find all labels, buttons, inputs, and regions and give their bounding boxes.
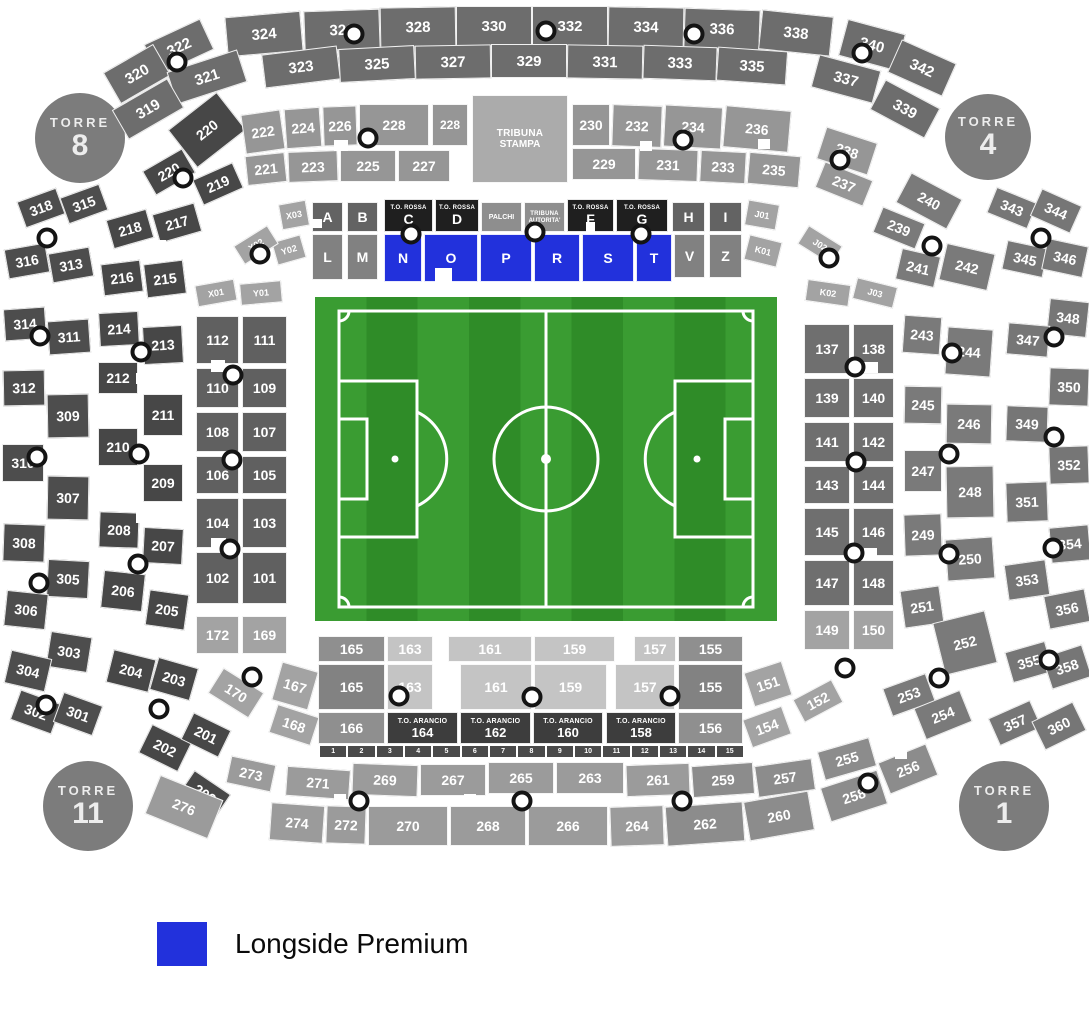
section-334[interactable]: 334 (608, 6, 685, 47)
row-strip-number: 15 (717, 746, 743, 757)
section-150[interactable]: 150 (853, 610, 894, 650)
gate-marker-icon (858, 773, 879, 794)
section-302[interactable]: 302 (10, 689, 62, 734)
gate-marker-icon (358, 128, 379, 149)
section-j01[interactable]: J01 (744, 199, 780, 230)
section-307[interactable]: 307 (47, 476, 90, 521)
section-165[interactable]: 165 (318, 636, 385, 662)
gate-marker-icon (929, 668, 950, 689)
stadium-seat-map: 123456789101112131415 Longside Premium 3… (0, 0, 1089, 1032)
section-155[interactable]: 155 (678, 636, 743, 662)
gate-marker-icon (36, 695, 57, 716)
section-139[interactable]: 139 (804, 378, 850, 418)
section-260[interactable]: 260 (743, 791, 815, 842)
section-167[interactable]: 167 (271, 662, 319, 711)
gate-marker-icon (27, 447, 48, 468)
gate-marker-icon (349, 791, 370, 812)
section-236[interactable]: 236 (722, 105, 791, 153)
section-270[interactable]: 270 (368, 806, 448, 846)
vomitory-notch (940, 289, 952, 299)
section-351[interactable]: 351 (1005, 481, 1048, 522)
section-149[interactable]: 149 (804, 610, 850, 650)
section-151[interactable]: 151 (743, 661, 792, 708)
gate-marker-icon (672, 791, 693, 812)
section-147[interactable]: 147 (804, 560, 850, 606)
row-strip-number: 6 (462, 746, 488, 757)
section-137[interactable]: 137 (804, 324, 850, 374)
gate-marker-icon (149, 699, 170, 720)
section-232[interactable]: 232 (611, 104, 662, 148)
section-308[interactable]: 308 (2, 523, 45, 562)
section-268[interactable]: 268 (450, 806, 526, 846)
row-strip-number: 14 (688, 746, 714, 757)
row-strip-number: 10 (575, 746, 601, 757)
vomitory-notch (758, 139, 770, 149)
section-214[interactable]: 214 (98, 311, 140, 347)
gate-marker-icon (1031, 228, 1052, 249)
section-172[interactable]: 172 (196, 616, 239, 654)
section-318[interactable]: 318 (16, 188, 65, 229)
section-162[interactable]: T.O. ARANCIO162 (460, 712, 531, 744)
section-102[interactable]: 102 (196, 552, 239, 604)
section-111[interactable]: 111 (242, 316, 287, 364)
section-252[interactable]: 252 (932, 610, 997, 675)
section-222[interactable]: 222 (240, 109, 285, 154)
gate-marker-icon (845, 357, 866, 378)
section-303[interactable]: 303 (45, 631, 92, 673)
row-strip-number: 11 (603, 746, 629, 757)
gate-marker-icon (389, 686, 410, 707)
gate-marker-icon (220, 539, 241, 560)
section-205[interactable]: 205 (145, 589, 190, 630)
section-264[interactable]: 264 (609, 805, 664, 847)
section-248[interactable]: 248 (946, 466, 995, 519)
section-353[interactable]: 353 (1004, 559, 1051, 600)
section-231[interactable]: 231 (637, 148, 698, 182)
section-163[interactable]: 163 (387, 636, 433, 662)
section-148[interactable]: 148 (853, 560, 894, 606)
section-203[interactable]: 203 (149, 657, 199, 701)
section-p[interactable]: P (480, 234, 532, 282)
section-157[interactable]: 157 (634, 636, 676, 662)
section-207[interactable]: 207 (142, 527, 184, 565)
section-274[interactable]: 274 (269, 802, 326, 844)
row-strip-number: 3 (377, 746, 403, 757)
section-112[interactable]: 112 (196, 316, 239, 364)
row-strip-number: 4 (405, 746, 431, 757)
section-103[interactable]: 103 (242, 498, 287, 548)
gate-marker-icon (250, 244, 271, 265)
gate-marker-icon (835, 658, 856, 679)
section-155[interactable]: 155 (678, 664, 743, 710)
section-329[interactable]: 329 (491, 44, 567, 78)
gate-marker-icon (939, 444, 960, 465)
section-243[interactable]: 243 (902, 315, 943, 356)
gate-marker-icon (128, 554, 149, 575)
section-stampa[interactable]: TRIBUNASTAMPA (472, 95, 568, 183)
section-212[interactable]: 212 (98, 362, 138, 394)
section-273[interactable]: 273 (226, 756, 277, 793)
section-166[interactable]: 166 (318, 712, 385, 744)
section-206[interactable]: 206 (100, 570, 146, 612)
section-349[interactable]: 349 (1005, 405, 1048, 442)
section-y01[interactable]: Y01 (239, 280, 283, 306)
gate-marker-icon (844, 543, 865, 564)
section-217[interactable]: 217 (152, 203, 203, 244)
section-330[interactable]: 330 (456, 6, 532, 46)
row-strip-number: 7 (490, 746, 516, 757)
section-306[interactable]: 306 (3, 590, 49, 630)
vomitory-notch (864, 362, 878, 373)
section-105[interactable]: 105 (242, 456, 287, 494)
vomitory-notch (640, 141, 652, 151)
section-228[interactable]: 228 (432, 104, 468, 146)
section-169[interactable]: 169 (242, 616, 287, 654)
section-211[interactable]: 211 (143, 394, 183, 436)
section-331[interactable]: 331 (567, 44, 644, 79)
gate-marker-icon (819, 248, 840, 269)
section-221[interactable]: 221 (245, 152, 288, 186)
section-161[interactable]: 161 (460, 664, 532, 710)
section-218[interactable]: 218 (106, 209, 155, 249)
section-305[interactable]: 305 (46, 559, 90, 599)
vomitory-notch (435, 268, 452, 282)
section-245[interactable]: 245 (904, 386, 943, 425)
section-168[interactable]: 168 (268, 704, 319, 746)
gate-marker-icon (242, 667, 263, 688)
gate-marker-icon (344, 24, 365, 45)
section-159[interactable]: 159 (534, 636, 615, 662)
section-315[interactable]: 315 (59, 184, 108, 225)
vomitory-notch (895, 749, 907, 759)
row-strip-number: 5 (433, 746, 459, 757)
section-325[interactable]: 325 (338, 45, 416, 83)
legend-label: Longside Premium (235, 922, 468, 966)
section-256[interactable]: 256 (878, 743, 939, 794)
section-x03[interactable]: X03 (278, 200, 310, 230)
section-246[interactable]: 246 (946, 404, 993, 445)
section-y02[interactable]: Y02 (271, 234, 306, 265)
section-101[interactable]: 101 (242, 552, 287, 604)
section-143[interactable]: 143 (804, 466, 850, 504)
vomitory-notch (154, 240, 166, 250)
vomitory-notch (864, 548, 877, 559)
section-263[interactable]: 263 (556, 762, 624, 794)
section-m[interactable]: M (347, 234, 378, 280)
row-strip-number: 1 (320, 746, 346, 757)
football-pitch (315, 297, 777, 621)
section-267[interactable]: 267 (420, 764, 486, 796)
section-352[interactable]: 352 (1048, 445, 1089, 484)
gate-marker-icon (1044, 427, 1065, 448)
section-160[interactable]: T.O. ARANCIO160 (533, 712, 603, 744)
tower-torre-11: TORRE11 (43, 761, 133, 851)
row-strip-number: 8 (518, 746, 544, 757)
gate-marker-icon (30, 326, 51, 347)
section-109[interactable]: 109 (242, 368, 287, 408)
gate-marker-icon (922, 236, 943, 257)
tower-torre-8: TORRE8 (35, 93, 125, 183)
pitch-markings (315, 297, 777, 621)
section-165[interactable]: 165 (318, 664, 385, 710)
gate-marker-icon (846, 452, 867, 473)
section-224[interactable]: 224 (284, 107, 323, 149)
section-108[interactable]: 108 (196, 412, 239, 452)
tower-torre-1: TORRE1 (959, 761, 1049, 851)
section-343[interactable]: 343 (986, 187, 1037, 229)
gate-marker-icon (222, 450, 243, 471)
section-312[interactable]: 312 (3, 370, 46, 407)
section-335[interactable]: 335 (716, 47, 788, 86)
front-row-number-strip: 123456789101112131415 (320, 746, 743, 757)
section-247[interactable]: 247 (904, 450, 942, 492)
vomitory-notch (136, 373, 148, 384)
section-230[interactable]: 230 (572, 104, 610, 146)
section-259[interactable]: 259 (691, 762, 755, 798)
gate-marker-icon (167, 52, 188, 73)
gate-marker-icon (223, 365, 244, 386)
section-palchi[interactable]: PALCHI (481, 202, 522, 232)
section-215[interactable]: 215 (143, 260, 187, 299)
section-333[interactable]: 333 (642, 45, 717, 82)
section-326[interactable]: 326 (303, 9, 380, 52)
section-201[interactable]: 201 (181, 712, 232, 757)
section-i[interactable]: I (709, 202, 742, 232)
section-z[interactable]: Z (709, 234, 742, 278)
vomitory-notch (334, 140, 348, 151)
gate-marker-icon (536, 21, 557, 42)
gate-marker-icon (401, 224, 422, 245)
gate-marker-icon (852, 43, 873, 64)
gate-marker-icon (131, 342, 152, 363)
section-219[interactable]: 219 (192, 162, 244, 205)
gate-marker-icon (29, 573, 50, 594)
gate-marker-icon (1043, 538, 1064, 559)
gate-marker-icon (942, 343, 963, 364)
tower-torre-4: TORRE4 (945, 94, 1031, 180)
row-strip-number: 13 (660, 746, 686, 757)
gate-marker-icon (939, 544, 960, 565)
section-233[interactable]: 233 (699, 150, 747, 184)
gate-marker-icon (512, 791, 533, 812)
section-223[interactable]: 223 (287, 150, 338, 183)
section-208[interactable]: 208 (98, 511, 139, 548)
vomitory-notch (136, 512, 148, 523)
section-152[interactable]: 152 (792, 679, 843, 723)
section-229[interactable]: 229 (572, 148, 636, 180)
section-304[interactable]: 304 (4, 650, 53, 693)
legend: Longside Premium (157, 922, 468, 966)
section-159[interactable]: 159 (534, 664, 607, 710)
section-311[interactable]: 311 (47, 319, 91, 356)
section-l[interactable]: L (312, 234, 343, 280)
section-249[interactable]: 249 (903, 513, 942, 556)
section-164[interactable]: T.O. ARANCIO164 (387, 712, 458, 744)
section-360[interactable]: 360 (1031, 702, 1086, 751)
gate-marker-icon (660, 686, 681, 707)
gate-marker-icon (129, 444, 150, 465)
gate-marker-icon (522, 687, 543, 708)
section-301[interactable]: 301 (53, 692, 103, 736)
section-328[interactable]: 328 (380, 6, 457, 47)
section-235[interactable]: 235 (747, 152, 802, 188)
section-154[interactable]: 154 (742, 706, 792, 749)
section-141[interactable]: 141 (804, 422, 850, 462)
gate-marker-icon (1044, 327, 1065, 348)
section-265[interactable]: 265 (488, 762, 554, 794)
gate-marker-icon (1039, 650, 1060, 671)
section-156[interactable]: 156 (678, 712, 743, 744)
section-d[interactable]: T.O. ROSSAD (435, 199, 479, 232)
vomitory-notch (334, 794, 346, 804)
gate-marker-icon (631, 224, 652, 245)
vomitory-notch (464, 794, 476, 804)
section-h[interactable]: H (672, 202, 705, 232)
section-225[interactable]: 225 (340, 150, 396, 182)
vomitory-notch (602, 794, 614, 804)
section-216[interactable]: 216 (100, 260, 144, 297)
section-v[interactable]: V (674, 234, 705, 278)
gate-marker-icon (37, 228, 58, 249)
section-242[interactable]: 242 (938, 243, 995, 291)
section-158[interactable]: T.O. ARANCIO158 (606, 712, 676, 744)
gate-marker-icon (673, 130, 694, 151)
section-227[interactable]: 227 (398, 150, 450, 182)
section-k02[interactable]: K02 (805, 279, 852, 307)
section-107[interactable]: 107 (242, 412, 287, 452)
row-strip-number: 9 (547, 746, 573, 757)
section-356[interactable]: 356 (1043, 588, 1089, 629)
gate-marker-icon (525, 222, 546, 243)
section-266[interactable]: 266 (528, 806, 608, 846)
gate-marker-icon (173, 168, 194, 189)
section-350[interactable]: 350 (1048, 367, 1089, 406)
section-161[interactable]: 161 (448, 636, 532, 662)
vomitory-notch (312, 219, 322, 228)
section-313[interactable]: 313 (48, 247, 95, 284)
gate-marker-icon (830, 150, 851, 171)
section-309[interactable]: 309 (47, 394, 90, 439)
row-strip-number: 12 (632, 746, 658, 757)
section-j03[interactable]: J03 (852, 277, 898, 309)
vomitory-notch (586, 222, 595, 234)
section-209[interactable]: 209 (143, 464, 183, 502)
section-327[interactable]: 327 (415, 44, 492, 79)
section-x01[interactable]: X01 (194, 279, 237, 308)
section-r[interactable]: R (534, 234, 580, 282)
section-s[interactable]: S (582, 234, 634, 282)
row-strip-number: 2 (348, 746, 374, 757)
section-b[interactable]: B (347, 202, 378, 232)
gate-marker-icon (684, 24, 705, 45)
section-140[interactable]: 140 (853, 378, 894, 418)
legend-swatch-longside-premium (157, 922, 207, 966)
section-k01[interactable]: K01 (743, 234, 782, 267)
